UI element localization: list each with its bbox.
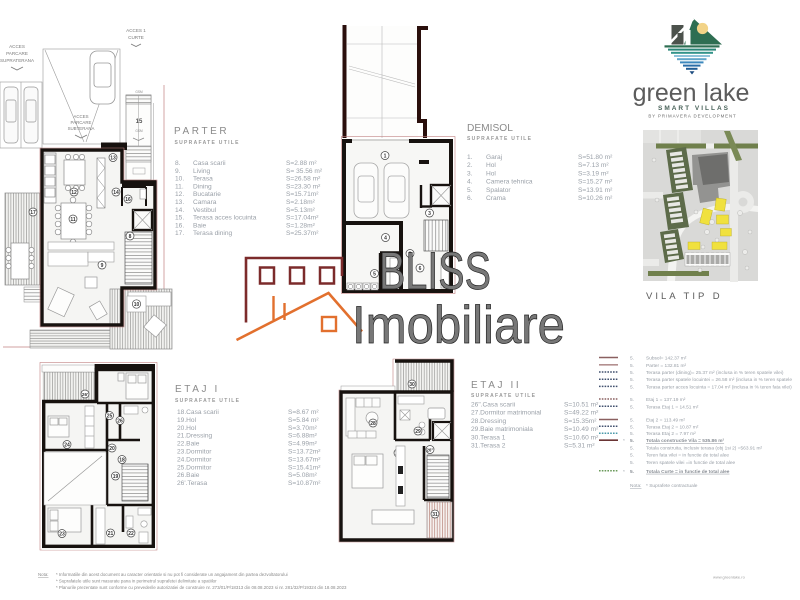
- svg-text:24.Dormitor: 24.Dormitor: [177, 456, 212, 463]
- svg-text:21.Dressing: 21.Dressing: [177, 433, 213, 440]
- svg-text:Spalator: Spalator: [486, 187, 511, 194]
- svg-text:S=2.88 m²: S=2.88 m²: [286, 160, 317, 167]
- svg-text:BY PRIMAVERA DEVELOPMENT: BY PRIMAVERA DEVELOPMENT: [648, 114, 736, 119]
- svg-text:Terasa Etaj 2 = 10.87 m²: Terasa Etaj 2 = 10.87 m²: [646, 424, 699, 430]
- svg-text:19: 19: [113, 474, 119, 480]
- svg-text:S=3.70m²: S=3.70m²: [288, 425, 318, 432]
- svg-text:14: 14: [113, 190, 119, 196]
- svg-text:S=4.99m²: S=4.99m²: [288, 441, 318, 448]
- svg-text:5.: 5.: [630, 460, 634, 466]
- svg-text:21: 21: [108, 531, 114, 537]
- svg-text:S=5.08m²: S=5.08m²: [288, 472, 318, 479]
- svg-text:4: 4: [384, 236, 387, 242]
- svg-text:30: 30: [409, 382, 415, 388]
- svg-text:S=15.35m²: S=15.35m²: [564, 418, 597, 425]
- svg-text:5.: 5.: [630, 424, 634, 430]
- svg-text:Etaj 2 = 113.49 m²: Etaj 2 = 113.49 m²: [646, 418, 685, 424]
- svg-text:SUPRAFATE UTILE: SUPRAFATE UTILE: [467, 136, 532, 142]
- svg-text:S=7.13 m²: S=7.13 m²: [578, 162, 609, 169]
- svg-text:S=10.60 m²: S=10.60 m²: [564, 434, 599, 441]
- svg-text:* Suprafatele utile sunt masur: * Suprafatele utile sunt masurate pana i…: [56, 579, 217, 584]
- svg-text:*: *: [623, 469, 625, 475]
- svg-text:31: 31: [432, 512, 438, 518]
- svg-text:DEMISOL: DEMISOL: [467, 123, 513, 134]
- svg-text:S=49.22 m²: S=49.22 m²: [564, 410, 599, 417]
- svg-text:5.: 5.: [630, 469, 634, 475]
- svg-text:Terasa: Terasa: [193, 176, 213, 183]
- svg-text:S=13.72m²: S=13.72m²: [288, 449, 321, 456]
- svg-text:14.: 14.: [175, 207, 184, 214]
- svg-text:8.: 8.: [175, 160, 181, 167]
- svg-text:S=26.58 m²: S=26.58 m²: [286, 176, 321, 183]
- svg-text:5.: 5.: [630, 384, 634, 390]
- svg-text:Nota:: Nota:: [38, 572, 49, 577]
- svg-text:5.: 5.: [630, 453, 634, 459]
- svg-text:SUPRAFATE UTILE: SUPRAFATE UTILE: [175, 398, 240, 404]
- svg-text:VILA TIP D: VILA TIP D: [646, 291, 723, 302]
- svg-text:SMART VILLAS: SMART VILLAS: [658, 105, 730, 112]
- svg-text:ACCES 1: ACCES 1: [126, 28, 146, 33]
- svg-text:5.: 5.: [630, 377, 634, 383]
- svg-text:ETAJ I: ETAJ I: [175, 384, 220, 395]
- svg-text:S=23.30 m²: S=23.30 m²: [286, 183, 321, 190]
- svg-text:* Informatiile din acest docum: * Informatiile din acest document au car…: [56, 572, 288, 577]
- svg-text:SUPRAFATE UTILE: SUPRAFATE UTILE: [175, 140, 240, 146]
- svg-text:26: 26: [117, 419, 123, 425]
- svg-text:8: 8: [129, 234, 132, 240]
- svg-text:Terasa parter acces locuinta =: Terasa parter acces locuinta = 17.04 m² …: [646, 384, 792, 390]
- svg-text:30.Terasa 1: 30.Terasa 1: [471, 434, 506, 441]
- svg-text:Etaj 1 = 137.19 m²: Etaj 1 = 137.19 m²: [646, 397, 686, 403]
- svg-text:ACCES: ACCES: [9, 44, 25, 49]
- svg-text:Teren fata vilei = in functie: Teren fata vilei = in functie de total a…: [646, 453, 729, 459]
- svg-text:18: 18: [119, 458, 125, 464]
- svg-text:www.greenlake.ro: www.greenlake.ro: [713, 575, 746, 580]
- svg-text:Terasa parter (dining)= 25.37: Terasa parter (dining)= 25.37 m² (inclus…: [646, 370, 784, 376]
- svg-text:S=13.67m²: S=13.67m²: [288, 456, 321, 463]
- svg-text:5.: 5.: [630, 370, 634, 376]
- svg-text:Camara: Camara: [193, 199, 217, 206]
- svg-text:4.: 4.: [467, 179, 473, 186]
- svg-text:S=5.13m²: S=5.13m²: [286, 207, 316, 214]
- svg-text:29: 29: [415, 429, 421, 435]
- svg-text:5.: 5.: [630, 356, 634, 362]
- svg-text:5.: 5.: [630, 445, 634, 451]
- svg-text:26.Baie: 26.Baie: [177, 472, 200, 479]
- svg-text:5.: 5.: [630, 363, 634, 369]
- svg-text:Living: Living: [193, 168, 211, 175]
- svg-text:27.Dormitor matrimonial: 27.Dormitor matrimonial: [471, 410, 542, 417]
- svg-text:5.: 5.: [467, 187, 473, 194]
- svg-text:5: 5: [373, 272, 376, 278]
- svg-text:Nota:: Nota:: [630, 483, 641, 489]
- svg-text:Camera tehnica: Camera tehnica: [486, 179, 533, 186]
- svg-text:29.Baie matrimoniala: 29.Baie matrimoniala: [471, 426, 533, 433]
- svg-text:23: 23: [59, 532, 65, 538]
- svg-text:16.: 16.: [175, 222, 184, 229]
- svg-text:S=15.27 m²: S=15.27 m²: [578, 179, 613, 186]
- svg-text:Terasa parter spatele locuinte: Terasa parter spatele locuintei = 26.58 …: [646, 377, 792, 383]
- svg-text:20.Hol: 20.Hol: [177, 425, 197, 432]
- svg-text:28: 28: [370, 421, 376, 427]
- svg-text:S=10.51 m²: S=10.51 m²: [564, 402, 599, 409]
- svg-text:S=10.26 m²: S=10.26 m²: [578, 195, 613, 202]
- svg-text:1: 1: [384, 154, 387, 160]
- svg-text:CURTE: CURTE: [128, 35, 144, 40]
- svg-text:5.: 5.: [630, 397, 634, 403]
- svg-text:SUBTERANA: SUBTERANA: [68, 126, 95, 131]
- svg-text:Baie: Baie: [193, 222, 207, 229]
- svg-text:GSM: GSM: [135, 90, 143, 94]
- svg-text:24: 24: [64, 443, 70, 449]
- svg-text:BLISS: BLISS: [379, 242, 491, 301]
- svg-text:2.: 2.: [467, 162, 473, 169]
- svg-text:S=3.19 m²: S=3.19 m²: [578, 170, 609, 177]
- svg-text:13.: 13.: [175, 199, 184, 206]
- svg-text:Vestibul: Vestibul: [193, 207, 217, 214]
- svg-text:SUPRATERANA: SUPRATERANA: [0, 58, 35, 63]
- svg-text:ETAJ II: ETAJ II: [471, 380, 521, 391]
- svg-text:S=51.80 m²: S=51.80 m²: [578, 154, 613, 161]
- svg-text:18.Casa scarii: 18.Casa scarii: [177, 409, 219, 416]
- svg-text:9: 9: [101, 263, 104, 269]
- svg-text:9.: 9.: [175, 168, 181, 175]
- svg-text:25.Dormitor: 25.Dormitor: [177, 464, 212, 471]
- svg-text:GSM: GSM: [135, 129, 143, 133]
- svg-text:S=25.37m²: S=25.37m²: [286, 230, 319, 237]
- svg-text:16: 16: [125, 197, 131, 203]
- svg-text:10.: 10.: [175, 176, 184, 183]
- svg-text:5.: 5.: [630, 438, 634, 444]
- svg-text:Parter = 132.81 m²: Parter = 132.81 m²: [646, 363, 687, 369]
- svg-text:23.Dormitor: 23.Dormitor: [177, 449, 212, 456]
- svg-text:11: 11: [70, 217, 76, 223]
- svg-text:Hol: Hol: [486, 162, 496, 169]
- svg-text:S=15.71m²: S=15.71m²: [286, 191, 319, 198]
- svg-text:Terasa acces locuinta: Terasa acces locuinta: [193, 215, 257, 222]
- svg-text:Terasa Etaj 2 = 7.97 m²: Terasa Etaj 2 = 7.97 m²: [646, 431, 696, 437]
- svg-text:Dining: Dining: [193, 183, 212, 190]
- svg-text:* Suprafete contractuale: * Suprafete contractuale: [646, 483, 698, 489]
- svg-text:20: 20: [109, 446, 115, 452]
- svg-text:1.: 1.: [467, 154, 473, 161]
- svg-text:Imobiliare: Imobiliare: [352, 296, 565, 355]
- svg-text:Bucatarie: Bucatarie: [193, 191, 221, 198]
- svg-text:ACCES: ACCES: [73, 114, 88, 119]
- svg-text:S=17.04m²: S=17.04m²: [286, 215, 319, 222]
- svg-text:* Planurile prezentate sunt co: * Planurile prezentate sunt conforme cu …: [56, 585, 347, 590]
- svg-text:Terasa dining: Terasa dining: [193, 230, 233, 237]
- svg-text:3: 3: [428, 211, 431, 217]
- svg-text:10: 10: [134, 302, 140, 308]
- svg-text:PARCARE: PARCARE: [6, 51, 28, 56]
- svg-text:26".Casa scarii: 26".Casa scarii: [471, 402, 516, 409]
- svg-text:11.: 11.: [175, 183, 184, 190]
- svg-text:17: 17: [30, 210, 36, 216]
- svg-text:6.: 6.: [467, 195, 473, 202]
- svg-text:17.: 17.: [175, 230, 184, 237]
- svg-text:19.Hol: 19.Hol: [177, 417, 197, 424]
- svg-text:12.: 12.: [175, 191, 184, 198]
- svg-text:22: 22: [128, 531, 134, 537]
- svg-text:Totala constructie Vila = 535.: Totala constructie Vila = 535.86 m²: [646, 438, 724, 444]
- svg-text:PARTER: PARTER: [174, 126, 229, 137]
- svg-text:13: 13: [110, 156, 116, 162]
- svg-text:15: 15: [136, 119, 143, 125]
- svg-text:Totala Curte = in functie de t: Totala Curte = in functie de total alee: [646, 469, 730, 475]
- svg-text:Garaj: Garaj: [486, 154, 503, 161]
- svg-text:S=5.84 m²: S=5.84 m²: [288, 417, 319, 424]
- svg-text:Crama: Crama: [486, 195, 506, 202]
- svg-text:12: 12: [71, 190, 77, 196]
- svg-text:Terasa Etaj 1 = 14.51 m²: Terasa Etaj 1 = 14.51 m²: [646, 404, 699, 410]
- svg-text:26": 26": [427, 448, 434, 453]
- svg-text:S=8.67 m²: S=8.67 m²: [288, 409, 319, 416]
- svg-text:15.: 15.: [175, 215, 184, 222]
- svg-text:Casa scarii: Casa scarii: [193, 160, 226, 167]
- svg-text:S= 35.56 m²: S= 35.56 m²: [286, 168, 323, 175]
- svg-text:S=6.88m²: S=6.88m²: [288, 433, 318, 440]
- svg-text:*: *: [623, 438, 625, 444]
- svg-text:S=10.87m²: S=10.87m²: [288, 480, 321, 487]
- svg-text:26'.Terasa: 26'.Terasa: [177, 480, 208, 487]
- svg-text:S=15.41m²: S=15.41m²: [288, 464, 321, 471]
- svg-text:5.: 5.: [630, 418, 634, 424]
- svg-text:S=10.49 m²: S=10.49 m²: [564, 426, 599, 433]
- svg-text:S=2.18m²: S=2.18m²: [286, 199, 316, 206]
- svg-text:SUPRAFATE UTILE: SUPRAFATE UTILE: [471, 393, 536, 399]
- svg-text:22.Baie: 22.Baie: [177, 441, 200, 448]
- svg-text:S=5.31 m²: S=5.31 m²: [564, 443, 595, 450]
- svg-text:31.Terasa 2: 31.Terasa 2: [471, 443, 506, 450]
- svg-text:26': 26': [82, 392, 88, 397]
- svg-text:green lake: green lake: [633, 79, 750, 107]
- svg-text:Totala construita, inclusiv te: Totala construita, inclusiv terasa (obj …: [646, 445, 763, 451]
- svg-text:3.: 3.: [467, 170, 473, 177]
- svg-text:PARCARE: PARCARE: [71, 120, 92, 125]
- svg-text:S=1.28m²: S=1.28m²: [286, 222, 316, 229]
- svg-text:Teren spatele vilei =in functi: Teren spatele vilei =in functie de total…: [646, 460, 736, 466]
- svg-text:28.Dressing: 28.Dressing: [471, 418, 507, 425]
- svg-text:Hol: Hol: [486, 170, 496, 177]
- svg-text:25: 25: [107, 414, 113, 420]
- svg-text:S=13.91 m²: S=13.91 m²: [578, 187, 613, 194]
- svg-text:Subsol= 142.37 m²: Subsol= 142.37 m²: [646, 356, 687, 362]
- svg-text:5.: 5.: [630, 431, 634, 437]
- svg-text:5.: 5.: [630, 404, 634, 410]
